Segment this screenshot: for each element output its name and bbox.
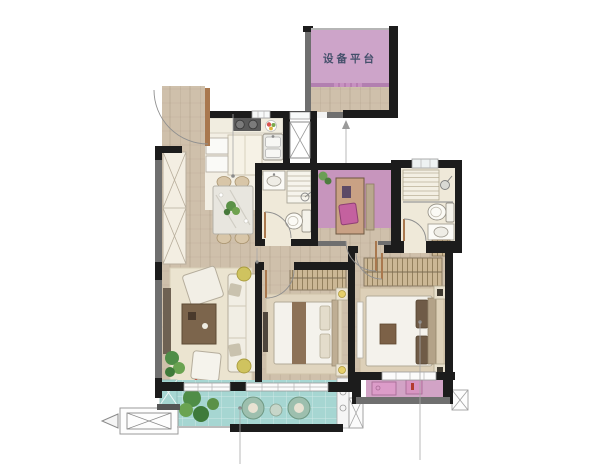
floor-plan-page: 设备平台 (0, 0, 600, 466)
pillow (320, 306, 330, 330)
window (412, 159, 438, 168)
burner-icon (236, 120, 245, 129)
equipment-platform-label: 设备平台 (323, 52, 377, 65)
lamp-icon (339, 367, 346, 374)
wall-segment (162, 382, 184, 391)
wall-segment (255, 163, 262, 246)
faucet-icon (272, 135, 275, 138)
shower-head-icon (441, 181, 450, 190)
wall-segment (384, 245, 391, 253)
pillow (320, 334, 330, 358)
wall-segment (391, 241, 404, 253)
dining-area (213, 177, 253, 244)
plant-icon (179, 403, 193, 417)
burner-icon (249, 120, 258, 129)
plant-icon (325, 178, 332, 185)
wall-segment (255, 262, 262, 382)
tv-icon (263, 312, 268, 352)
side-table (237, 267, 251, 281)
plant-icon (232, 207, 240, 215)
up-arrow-icon (342, 120, 350, 129)
entry-door-leaf (205, 88, 210, 146)
chair (339, 203, 359, 225)
window (252, 111, 270, 118)
side-table (237, 359, 251, 373)
faucet-icon (273, 173, 275, 175)
wall-segment (283, 111, 290, 168)
pillow (416, 336, 428, 364)
table-item (188, 312, 196, 320)
bed-runner (292, 302, 306, 364)
laptop-icon (342, 186, 351, 198)
sofa-pillow (228, 283, 242, 297)
plant-icon (224, 209, 230, 215)
wall-segment (155, 262, 162, 280)
shower-area (403, 170, 439, 200)
chair-seat (248, 403, 258, 413)
wall-segment (396, 160, 414, 168)
door-gap (358, 245, 384, 253)
plant-icon (165, 367, 175, 377)
floor-plan-drawing: 设备平台 (0, 0, 600, 466)
ottoman (191, 351, 222, 382)
wall-segment (343, 110, 398, 118)
washbasin-icon (434, 227, 448, 237)
wall-segment (348, 253, 355, 382)
wall-segment (157, 404, 180, 410)
balcony-edge (177, 426, 230, 428)
fridge-icon (206, 156, 228, 172)
wall-segment (305, 28, 311, 114)
lamp-icon (339, 291, 346, 298)
tableware-icon (244, 219, 248, 223)
window (290, 112, 310, 119)
foyer (163, 152, 186, 264)
headboard (332, 300, 338, 366)
tableware-icon (219, 193, 223, 197)
washbasin-icon (267, 176, 281, 186)
plant-icon (193, 406, 209, 422)
washer-icon (372, 382, 396, 395)
door-gap (404, 241, 426, 253)
red-marker (411, 383, 414, 390)
chair-seat (294, 403, 304, 413)
wall-segment (356, 397, 450, 404)
wall-segment (155, 378, 162, 398)
sink-basin (266, 149, 281, 158)
toilet-tank (446, 203, 454, 222)
bedroom-master (357, 240, 450, 377)
coffee-table (182, 304, 216, 344)
left-arrow-icon (102, 414, 118, 428)
leader-dot (231, 174, 235, 178)
wall-segment (160, 146, 182, 153)
wall-segment (311, 28, 389, 30)
window (382, 372, 436, 380)
sofa-pillow (228, 343, 242, 357)
wall-segment (255, 163, 398, 170)
sink-basin (266, 137, 281, 147)
living-room (163, 266, 258, 383)
plant-icon (207, 398, 219, 410)
wall-segment (311, 163, 318, 246)
table-item (202, 323, 208, 329)
blanket (380, 324, 396, 344)
door-gap (265, 239, 291, 246)
wall-segment (310, 111, 317, 170)
food-icon (267, 122, 271, 126)
door-gap (264, 262, 294, 270)
toilet-tank (302, 210, 311, 232)
ac-platform (102, 408, 178, 434)
leader-dot (255, 260, 258, 263)
side-shelf (366, 184, 374, 230)
wall-segment (389, 26, 398, 118)
wall-segment (230, 382, 246, 391)
wall-segment (230, 424, 343, 432)
headboard (428, 298, 436, 364)
food-icon (269, 127, 273, 131)
lamp-icon (437, 289, 443, 296)
wall-segment (348, 245, 358, 253)
door-gap (346, 240, 378, 246)
platform-deck (311, 87, 389, 114)
wall-segment (455, 160, 462, 252)
wall-segment (445, 245, 453, 380)
tv-panel (357, 302, 363, 358)
wall-segment (205, 111, 252, 118)
foyer-floor (162, 86, 205, 126)
food-icon (272, 123, 276, 127)
wall-segment (328, 382, 355, 392)
equipment-platform: 设备平台 (303, 26, 398, 170)
wall-segment (391, 160, 401, 253)
pillow (416, 300, 428, 328)
tv-console (163, 288, 171, 354)
